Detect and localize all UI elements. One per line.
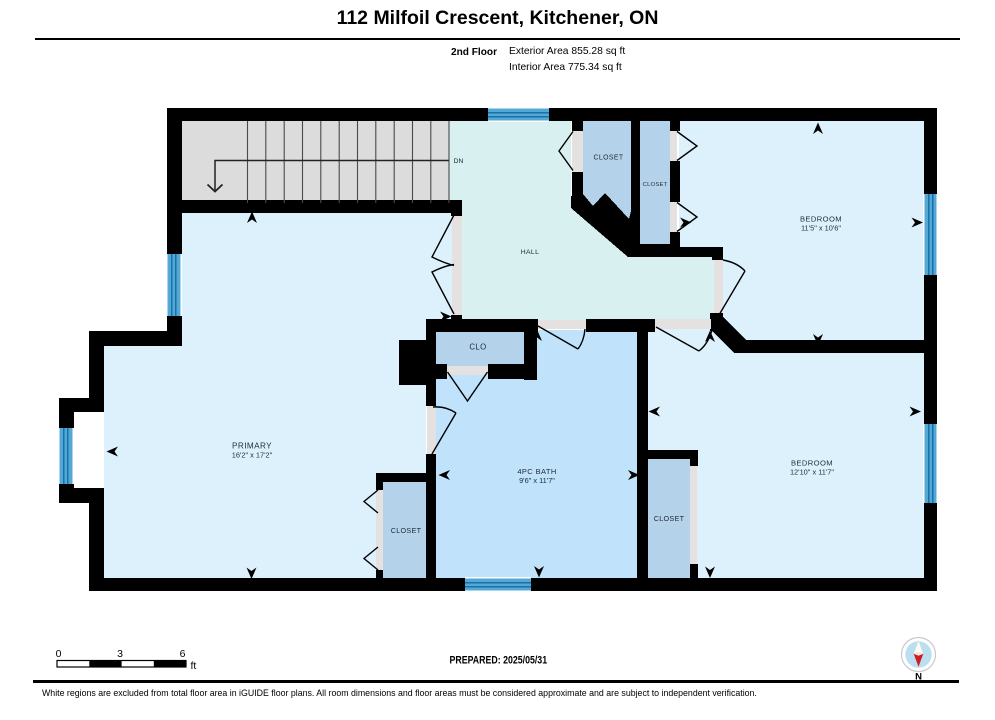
svg-text:16'2" x 17'2": 16'2" x 17'2" [232, 451, 273, 460]
svg-text:CLO: CLO [469, 343, 486, 352]
svg-text:CLOSET: CLOSET [654, 514, 685, 523]
svg-text:CLOSET: CLOSET [594, 155, 624, 162]
svg-text:3: 3 [117, 648, 123, 660]
svg-text:4PC BATH: 4PC BATH [517, 467, 556, 476]
svg-text:12'10" x 11'7": 12'10" x 11'7" [790, 468, 834, 477]
svg-text:BEDROOM: BEDROOM [800, 215, 842, 224]
svg-text:PREPARED: 2025/05/31: PREPARED: 2025/05/31 [450, 655, 548, 667]
svg-text:11'5" x 10'6": 11'5" x 10'6" [801, 224, 841, 233]
svg-text:9'6" x 11'7": 9'6" x 11'7" [519, 476, 555, 485]
svg-text:BEDROOM: BEDROOM [791, 459, 833, 468]
svg-text:ft: ft [191, 660, 197, 672]
svg-text:CLOSET: CLOSET [391, 526, 422, 535]
svg-text:0: 0 [56, 648, 62, 660]
svg-text:PRIMARY: PRIMARY [232, 442, 272, 451]
svg-text:6: 6 [180, 648, 186, 660]
svg-text:DN: DN [454, 158, 464, 165]
svg-text:CLOSET: CLOSET [643, 182, 668, 188]
svg-text:HALL: HALL [521, 249, 540, 256]
